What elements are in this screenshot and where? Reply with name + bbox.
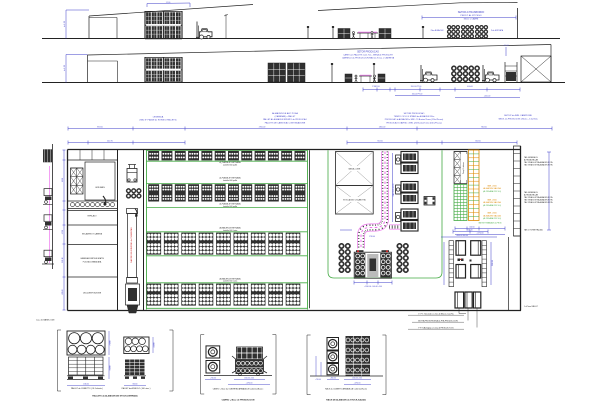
- svg-text:CELLA ESPOSIZIONE: CELLA ESPOSIZIONE: [83, 292, 102, 295]
- svg-text:RACK DE ALMACEN da STOCK-SALID: RACK DE ALMACEN da STOCK-SALIDA: [326, 399, 366, 402]
- svg-text:560.00: 560.00: [475, 141, 481, 143]
- svg-text:h=6.00: h=6.00: [64, 64, 66, 71]
- svg-text:ALTEZZA PALLAN: ALTEZZA PALLAN: [524, 194, 539, 197]
- svg-text:PRODT. AL RT PESO: PRODT. AL RT PESO: [460, 14, 482, 17]
- svg-text:h=6.00: h=6.00: [64, 20, 66, 27]
- svg-text:Cas. de BASEL 15M: Cas. de BASEL 15M: [36, 319, 55, 322]
- svg-text:+750.00: +750.00: [210, 378, 216, 380]
- svg-text:VAR SETTIMANALE da PROD: VAR SETTIMANALE da PROD: [478, 222, 502, 225]
- svg-text:PALLET da ALVEOLO ( 40 Latas ): PALLET da ALVEOLO ( 40 Latas ): [122, 387, 151, 390]
- svg-text:60.00: 60.00: [62, 178, 64, 182]
- svg-text:1120.00: 1120.00: [492, 260, 494, 266]
- svg-text:PALLET da CUBIETTO ( 36 Cubiet: PALLET da CUBIETTO ( 36 Cubiette ): [71, 387, 103, 390]
- svg-text:+1750.00: +1750.00: [354, 383, 361, 385]
- svg-text:REFILADO: REFILADO: [88, 215, 98, 218]
- svg-text:150.00 PT.00: 150.00 PT.00: [412, 94, 423, 96]
- svg-text:P.TA P.00: P.TA P.00: [372, 85, 380, 88]
- svg-text:CARRO + Base de PRODUCCION: CARRO + Base de PRODUCCION: [222, 399, 255, 402]
- svg-text:Lardefini 500 Latas: Lardefini 500 Latas: [223, 229, 238, 232]
- svg-text:1° P.T. Secondo a Linea di Mar: 1° P.T. Secondo a Linea di Marcia Carr/S…: [418, 312, 454, 315]
- svg-text:+12.00: +12.00: [503, 45, 509, 47]
- svg-text:CARRI con PALLETS Cont. N1 + M: CARRI con PALLETS Cont. N1 + MESA de PRO…: [343, 54, 393, 57]
- svg-text:PALLETS DE CAMION AL CONTINUAZ: PALLETS DE CAMION AL CONTINUAZIONE: [265, 121, 306, 124]
- svg-text:760.00: 760.00: [110, 340, 112, 345]
- svg-text:1160.00: 1160.00: [83, 384, 89, 386]
- svg-text:740.00: 740.00: [377, 141, 383, 143]
- svg-text:1500.00 +500: 1500.00 +500: [352, 378, 362, 380]
- svg-text:1750.00: 1750.00: [369, 236, 375, 238]
- svg-text:Lardefini 500 pallet: Lardefini 500 pallet: [223, 179, 238, 182]
- svg-text:Lardefini 500 pallet: Lardefini 500 pallet: [223, 164, 238, 167]
- svg-text:LEGENDA: LEGENDA: [153, 116, 164, 119]
- svg-text:GRID BATH: GRID BATH: [95, 186, 105, 189]
- svg-text:ALMACEN SALIDA: ALMACEN SALIDA: [483, 214, 501, 217]
- svg-text:940.00: 940.00: [481, 127, 487, 129]
- svg-text:400.00: 400.00: [469, 227, 474, 229]
- svg-text:PALLET AL ALMACEN SPENTO de PR: PALLET AL ALMACEN SPENTO de PRODUCAO: [263, 118, 307, 121]
- svg-text:200.00 PT.00: 200.00 PT.00: [411, 86, 422, 88]
- svg-text:TAVOL da PRODUCION x/Busta - 5: TAVOL da PRODUCION x/Busta - 5 da Beta: [498, 117, 538, 120]
- svg-text:CARRELLI da PRODUCCION MAX da: CARRELLI da PRODUCCION MAX da N Cai. x C…: [342, 57, 395, 60]
- svg-text:RACK da CUBIERTO ARMADA [ B Cu: RACK da CUBIERTO ARMADA [ B Cubiertas/Ra…: [325, 387, 367, 390]
- svg-text:1 of Torre PALLET: 1 of Torre PALLET: [524, 305, 538, 308]
- svg-text:CARRO + Base da CUBIERTAS ARMA: CARRO + Base da CUBIERTAS ARMADA ( B Cub…: [213, 387, 264, 390]
- svg-text:+750.00: +750.00: [315, 379, 321, 381]
- svg-text:SETUP da IMB. CAMPIONE: SETUP da IMB. CAMPIONE: [504, 114, 532, 117]
- svg-text:280.00: 280.00: [62, 289, 64, 294]
- svg-text:TAV. DI TORRE PALLAN: TAV. DI TORRE PALLAN: [524, 229, 543, 232]
- svg-text:P.da ALMACEN: P.da ALMACEN: [431, 29, 444, 32]
- svg-text:400.10: 400.10: [467, 230, 472, 232]
- svg-text:100.10: 100.10: [62, 257, 64, 262]
- svg-text:BOTTA PROVVISORIA da PTA PRODU: BOTTA PROVVISORIA da PTA PRODUCCION: [418, 319, 458, 322]
- svg-text:(CAMBRAS) x PALLET: (CAMBRAS) x PALLET: [275, 115, 296, 118]
- svg-text:870.00: 870.00: [97, 127, 103, 129]
- svg-text:SETOR PRODUCAO: SETOR PRODUCAO: [404, 112, 425, 115]
- svg-text:PULIZIA COMANDATA: PULIZIA COMANDATA: [83, 261, 102, 264]
- svg-text:+1750.00: +1750.00: [246, 383, 253, 385]
- svg-text:2700.00: 2700.00: [259, 127, 266, 129]
- svg-text:T°P.T (Bottiglia) a Linea di P: T°P.T (Bottiglia) a Linea di PRODUCT LTD: [418, 326, 454, 329]
- svg-text:SETOR PRODUCAO: SETOR PRODUCAO: [357, 51, 379, 54]
- svg-text:ALTEZZA PALLAN: ALTEZZA PALLAN: [524, 159, 539, 162]
- svg-text:NASTRO 46.00: NASTRO 46.00: [392, 184, 395, 196]
- svg-text:TEMPO CICLO 4 STAND de ALMACEN: TEMPO CICLO 4 STAND de ALMACEN 15hs: [394, 115, 434, 118]
- svg-text:STOCCAGGIO x SCAMOTTA: STOCCAGGIO x SCAMOTTA: [343, 199, 366, 202]
- svg-text:400.00: 400.00: [467, 86, 473, 88]
- svg-text:VAR. 2000: VAR. 2000: [487, 199, 497, 202]
- svg-text:NICO x CARRI: NICO x CARRI: [464, 17, 479, 20]
- svg-text:ALMACEN SALIDA: ALMACEN SALIDA: [483, 201, 501, 204]
- svg-text:+800.00: +800.00: [330, 378, 336, 380]
- svg-text:(TAV. N° PIAZZE de ROWS DI PAL: (TAV. N° PIAZZE de ROWS DI PALLETS): [140, 119, 177, 122]
- svg-text:+500.00: +500.00: [484, 96, 491, 98]
- svg-text:PRODUCAO di ALMACEN x MIN - 70: PRODUCAO di ALMACEN x MIN - 70 Bustas/Tu…: [385, 118, 444, 121]
- svg-text:1.100: 1.100: [166, 2, 171, 4]
- svg-text:SETOR di TRASBORDO: SETOR di TRASBORDO: [458, 11, 485, 14]
- svg-text:(AL PEDANA CIRC 0.0): (AL PEDANA CIRC 0.0): [483, 190, 501, 193]
- svg-text:PRODUCAO DI AVRILI x MIN. (26: PRODUCAO DI AVRILI x MIN. (26 Bustas/Tur…: [386, 121, 442, 124]
- svg-text:1500.00 +500: 1500.00 +500: [244, 378, 254, 380]
- svg-text:47.10: 47.10: [62, 230, 64, 234]
- svg-text:Lardefini 500 pallet: Lardefini 500 pallet: [223, 205, 238, 208]
- svg-text:VAR. 2000: VAR. 2000: [487, 185, 497, 188]
- svg-text:+1750.00: +1750.00: [476, 233, 483, 235]
- svg-text:VAR. 2000: VAR. 2000: [487, 212, 497, 215]
- svg-text:Tamp Producao: Tamp Producao: [462, 162, 465, 174]
- svg-text:SECADERO E CAMERA: SECADERO E CAMERA: [82, 233, 103, 236]
- svg-text:800.00: 800.00: [133, 384, 138, 386]
- svg-text:VASCA x LINE: VASCA x LINE: [348, 168, 361, 171]
- svg-text:NASTRO ELEVATORE da CUBIERTAS: NASTRO ELEVATORE da CUBIERTAS: [130, 227, 133, 263]
- svg-text:1300.00: 1300.00: [379, 127, 386, 129]
- svg-text:CAMERA ESTATICA GRATIS: CAMERA ESTATICA GRATIS: [80, 257, 104, 260]
- svg-text:ALMACEN SALIDA: ALMACEN SALIDA: [483, 187, 501, 190]
- svg-text:440.70: 440.70: [107, 141, 113, 143]
- svg-text:560.00: 560.00: [154, 342, 156, 347]
- svg-text:P.da ENTRATA: P.da ENTRATA: [491, 29, 504, 32]
- svg-text:(AL PEDANA CIRC 0.0): (AL PEDANA CIRC 0.0): [483, 204, 501, 207]
- svg-text:+800.00 100.00: +800.00 100.00: [456, 235, 468, 237]
- svg-text:Lardefini 500 Latas: Lardefini 500 Latas: [223, 280, 238, 283]
- svg-text:+1500.00 +500.00 +500: +1500.00 +500.00 +500: [364, 286, 382, 288]
- svg-text:ALMACEN DE AVC POSA: ALMACEN DE AVC POSA: [272, 112, 298, 115]
- svg-text:PALLETS da ALMACEN DE STOCK-EN: PALLETS da ALMACEN DE STOCK-ENTRADA: [92, 395, 138, 398]
- svg-text:(AL PEDANA CIRC 0.0): (AL PEDANA CIRC 0.0): [483, 217, 501, 220]
- svg-text:960.00: 960.00: [110, 365, 112, 370]
